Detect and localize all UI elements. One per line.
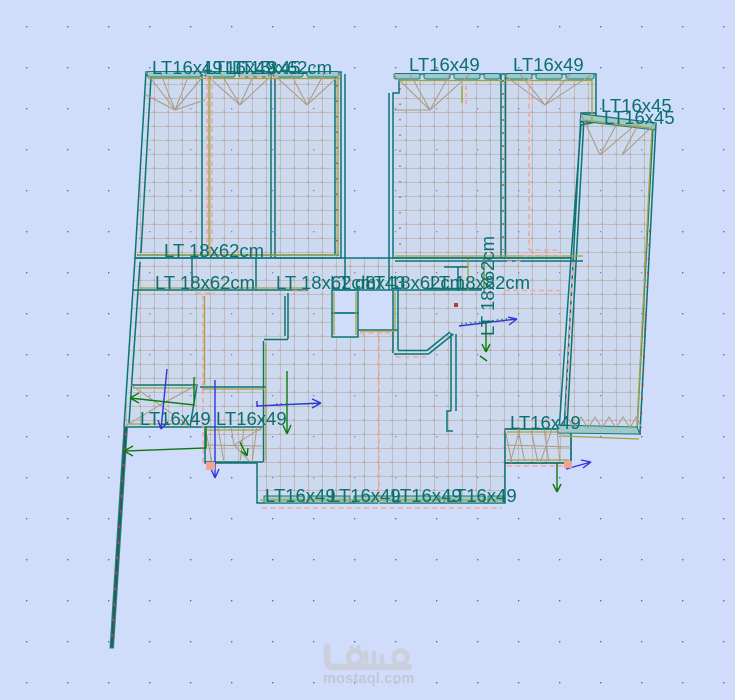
svg-text:LT16x49: LT16x49	[446, 485, 517, 506]
svg-text:LT 18x62cm: LT 18x62cm	[164, 240, 264, 261]
svg-text:LT16x49: LT16x49	[265, 485, 336, 506]
svg-text:LT16x49: LT16x49	[513, 54, 584, 75]
svg-text:LT 18x62cm: LT 18x62cm	[477, 236, 498, 336]
svg-text:LT16x49: LT16x49	[510, 412, 581, 433]
svg-text:LT 18x62cm: LT 18x62cm	[155, 272, 255, 293]
svg-text:mostaql.com: mostaql.com	[323, 671, 415, 687]
svg-text:LT16x49: LT16x49	[409, 54, 480, 75]
svg-text:LT16x49: LT16x49	[140, 408, 211, 429]
svg-text:LT16x49: LT16x49	[216, 408, 287, 429]
svg-text:LT16x45: LT16x45	[604, 107, 675, 128]
svg-text:LT 18x62cm: LT 18x62cm	[232, 57, 332, 78]
